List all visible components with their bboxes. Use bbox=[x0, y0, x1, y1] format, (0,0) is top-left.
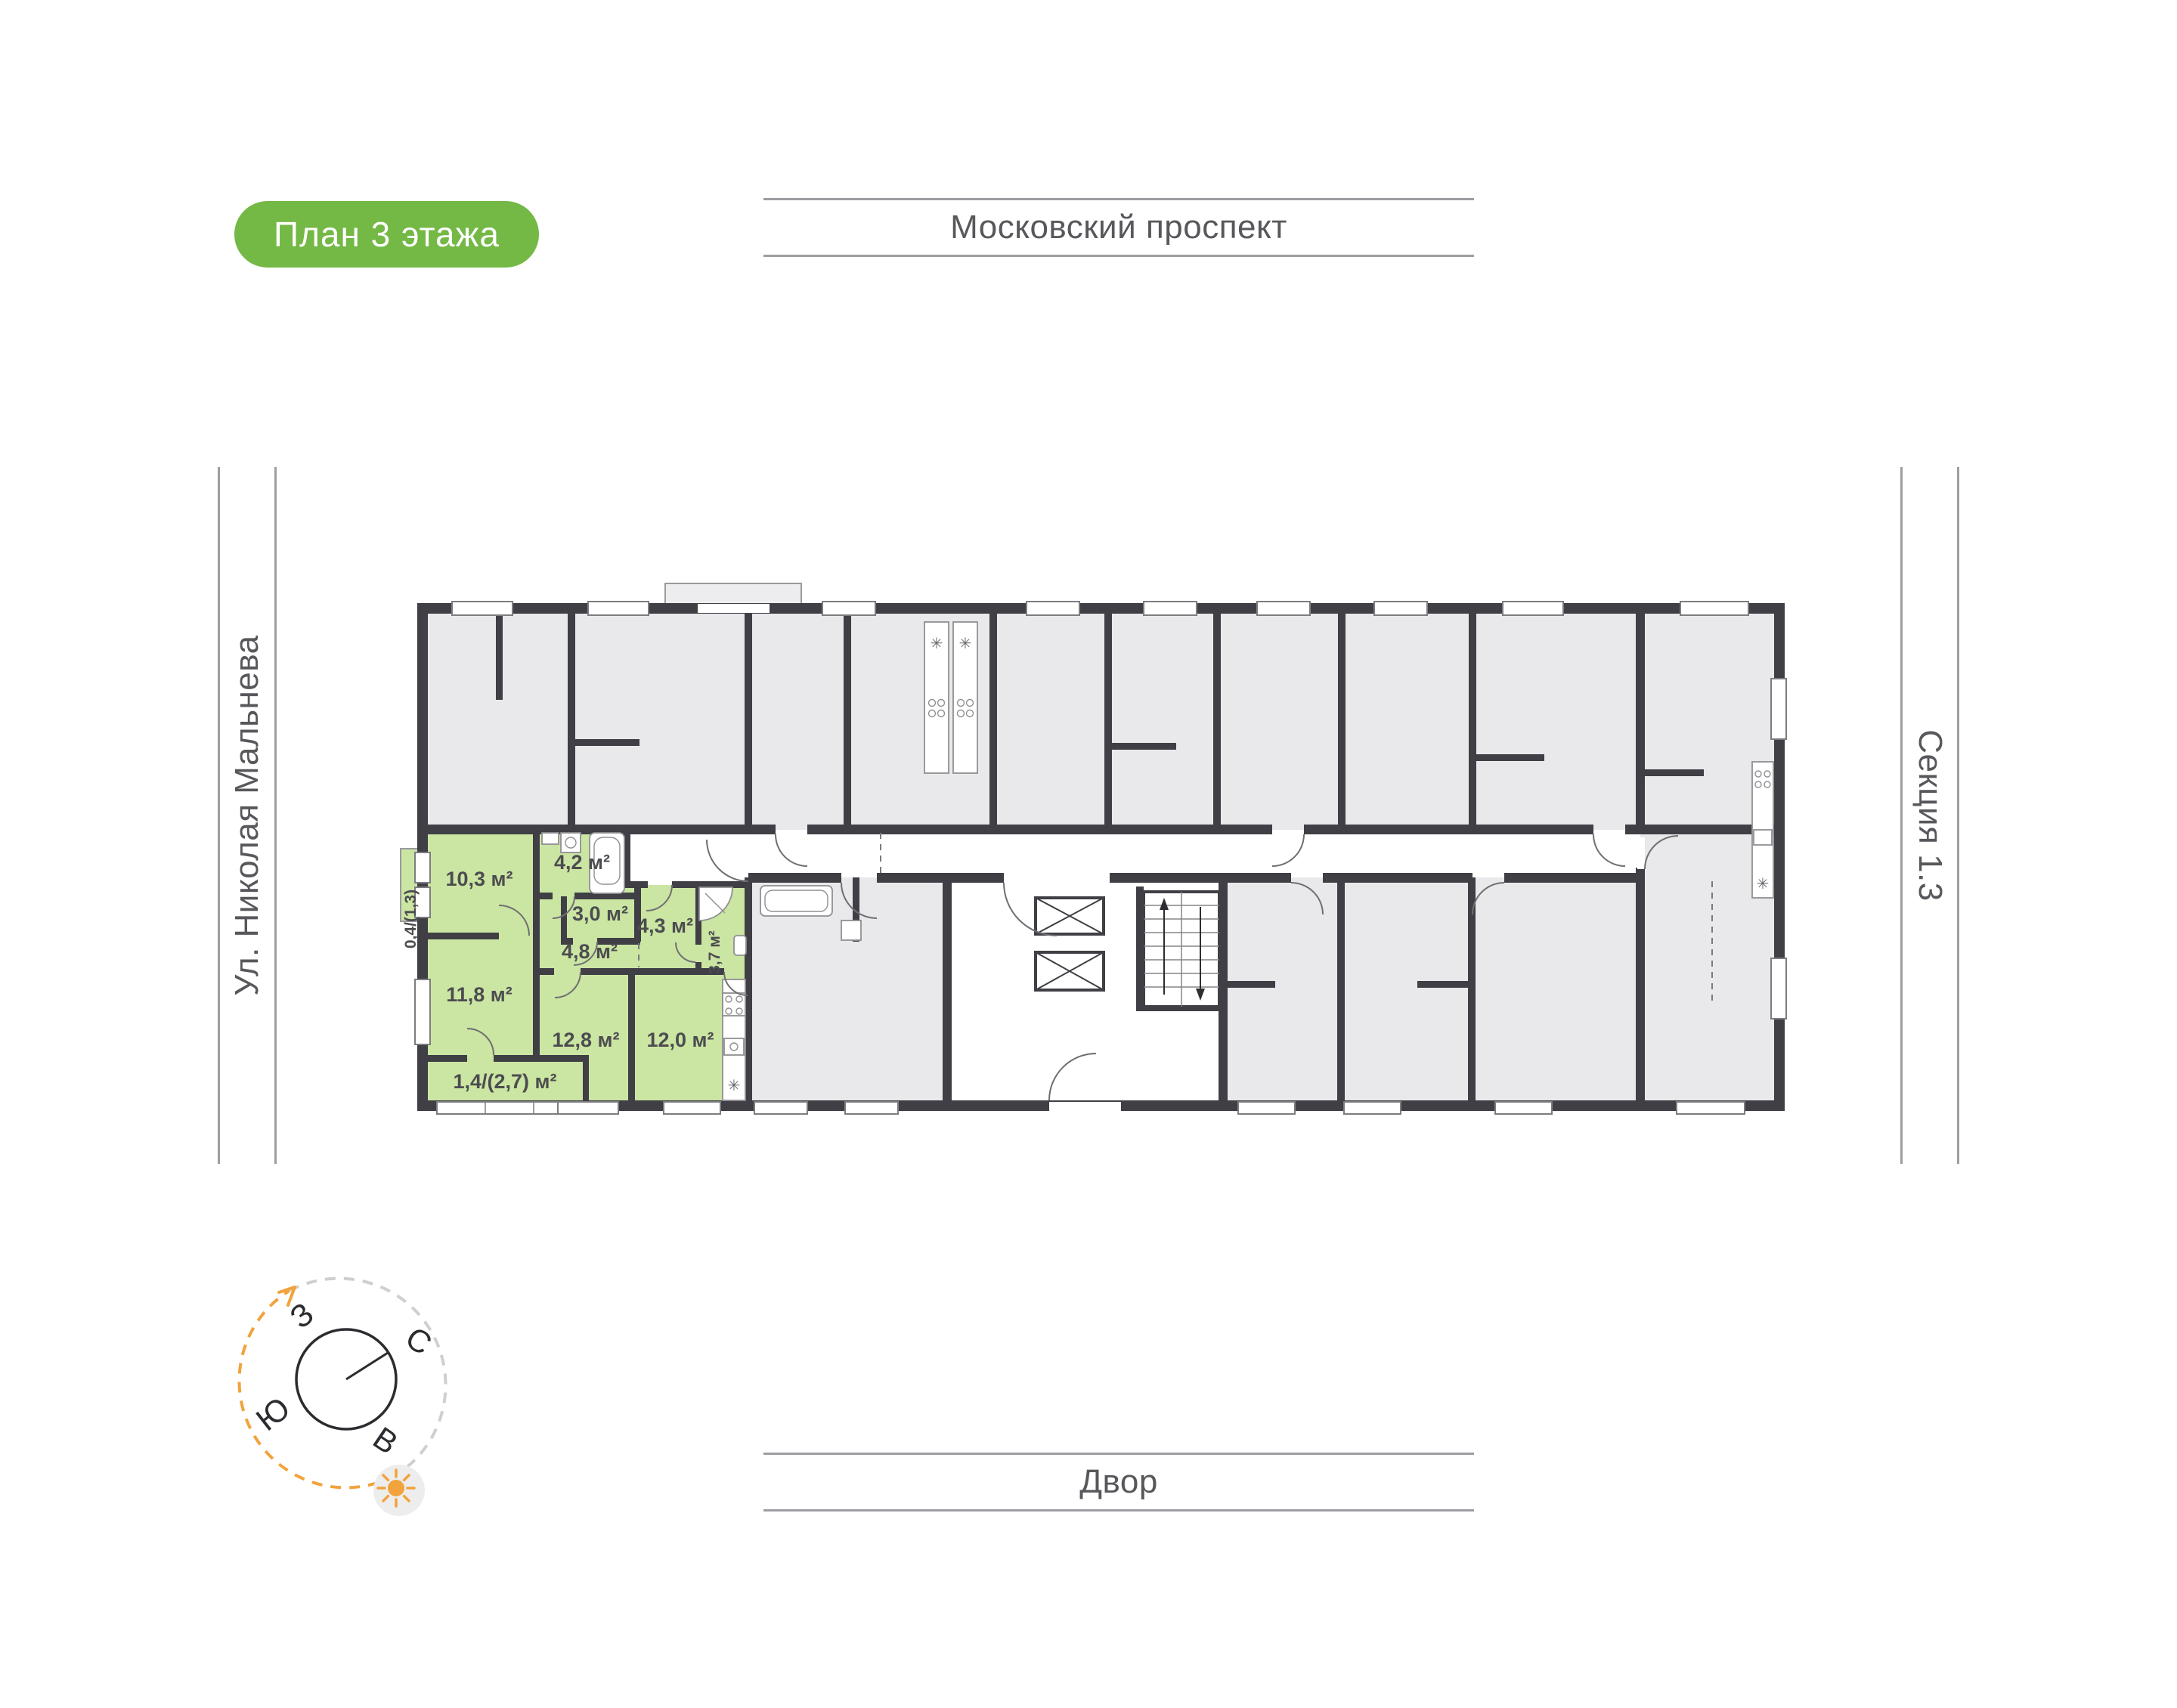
room-label: 3,0 м² bbox=[572, 902, 628, 925]
room-label: 1,4/(2,7) м² bbox=[453, 1070, 556, 1093]
street-label-left: Ул. Николая Мальнева bbox=[218, 467, 277, 1164]
divider-line bbox=[763, 255, 1474, 257]
washer bbox=[561, 833, 581, 852]
toilet bbox=[734, 936, 746, 955]
street-name-left: Ул. Николая Мальнева bbox=[228, 635, 266, 995]
compass-south: Ю bbox=[249, 1390, 296, 1437]
compass: З С Ю В bbox=[219, 1239, 476, 1542]
room-label: 4,3 м² bbox=[637, 914, 693, 937]
svg-text:✳: ✳ bbox=[959, 634, 972, 652]
street-name-bottom: Двор bbox=[763, 1463, 1474, 1501]
divider-line bbox=[763, 1453, 1474, 1455]
room-label: 4,2 м² bbox=[554, 851, 610, 874]
room-label: 12,8 м² bbox=[552, 1029, 619, 1051]
divider-line bbox=[1957, 467, 1959, 1164]
room-label: 10,3 м² bbox=[445, 868, 513, 890]
stairs bbox=[1144, 892, 1219, 1007]
street-label-bottom: Двор bbox=[763, 1453, 1474, 1512]
orbit-arc bbox=[290, 1279, 446, 1475]
kitchen-sink bbox=[724, 1038, 744, 1055]
floor-plan-page: План 3 этажа Московский проспект Двор Ул… bbox=[0, 0, 2177, 1708]
room-label: 4,8 м² bbox=[562, 940, 618, 963]
divider-line bbox=[274, 467, 277, 1164]
room-label: 12,0 м² bbox=[646, 1029, 714, 1051]
room-label: 3,7 м² bbox=[706, 930, 723, 974]
floor-plan-drawing: ✳ ✳ ✳ ✳ bbox=[399, 580, 1790, 1125]
floor-badge: План 3 этажа bbox=[234, 201, 539, 268]
svg-text:✳: ✳ bbox=[728, 1076, 741, 1094]
compass-needle bbox=[346, 1353, 388, 1379]
room-label: 0,4/(1,3) bbox=[402, 890, 420, 948]
compass-east: В bbox=[367, 1420, 404, 1462]
divider-line bbox=[218, 467, 220, 1164]
washer bbox=[841, 921, 861, 940]
sun-icon bbox=[373, 1465, 425, 1516]
compass-north: С bbox=[399, 1320, 438, 1362]
svg-text:✳: ✳ bbox=[1757, 874, 1770, 893]
section-name: Секция 1.3 bbox=[1911, 729, 1949, 902]
corridor bbox=[748, 830, 1640, 877]
divider-line bbox=[1900, 467, 1903, 1164]
room-label: 11,8 м² bbox=[446, 983, 513, 1006]
section-label-right: Секция 1.3 bbox=[1900, 467, 1959, 1164]
divider-line bbox=[763, 198, 1474, 200]
street-name-top: Московский проспект bbox=[763, 209, 1474, 246]
divider-line bbox=[763, 1509, 1474, 1512]
street-label-top: Московский проспект bbox=[763, 198, 1474, 257]
sink bbox=[542, 833, 559, 844]
svg-text:✳: ✳ bbox=[931, 634, 943, 652]
